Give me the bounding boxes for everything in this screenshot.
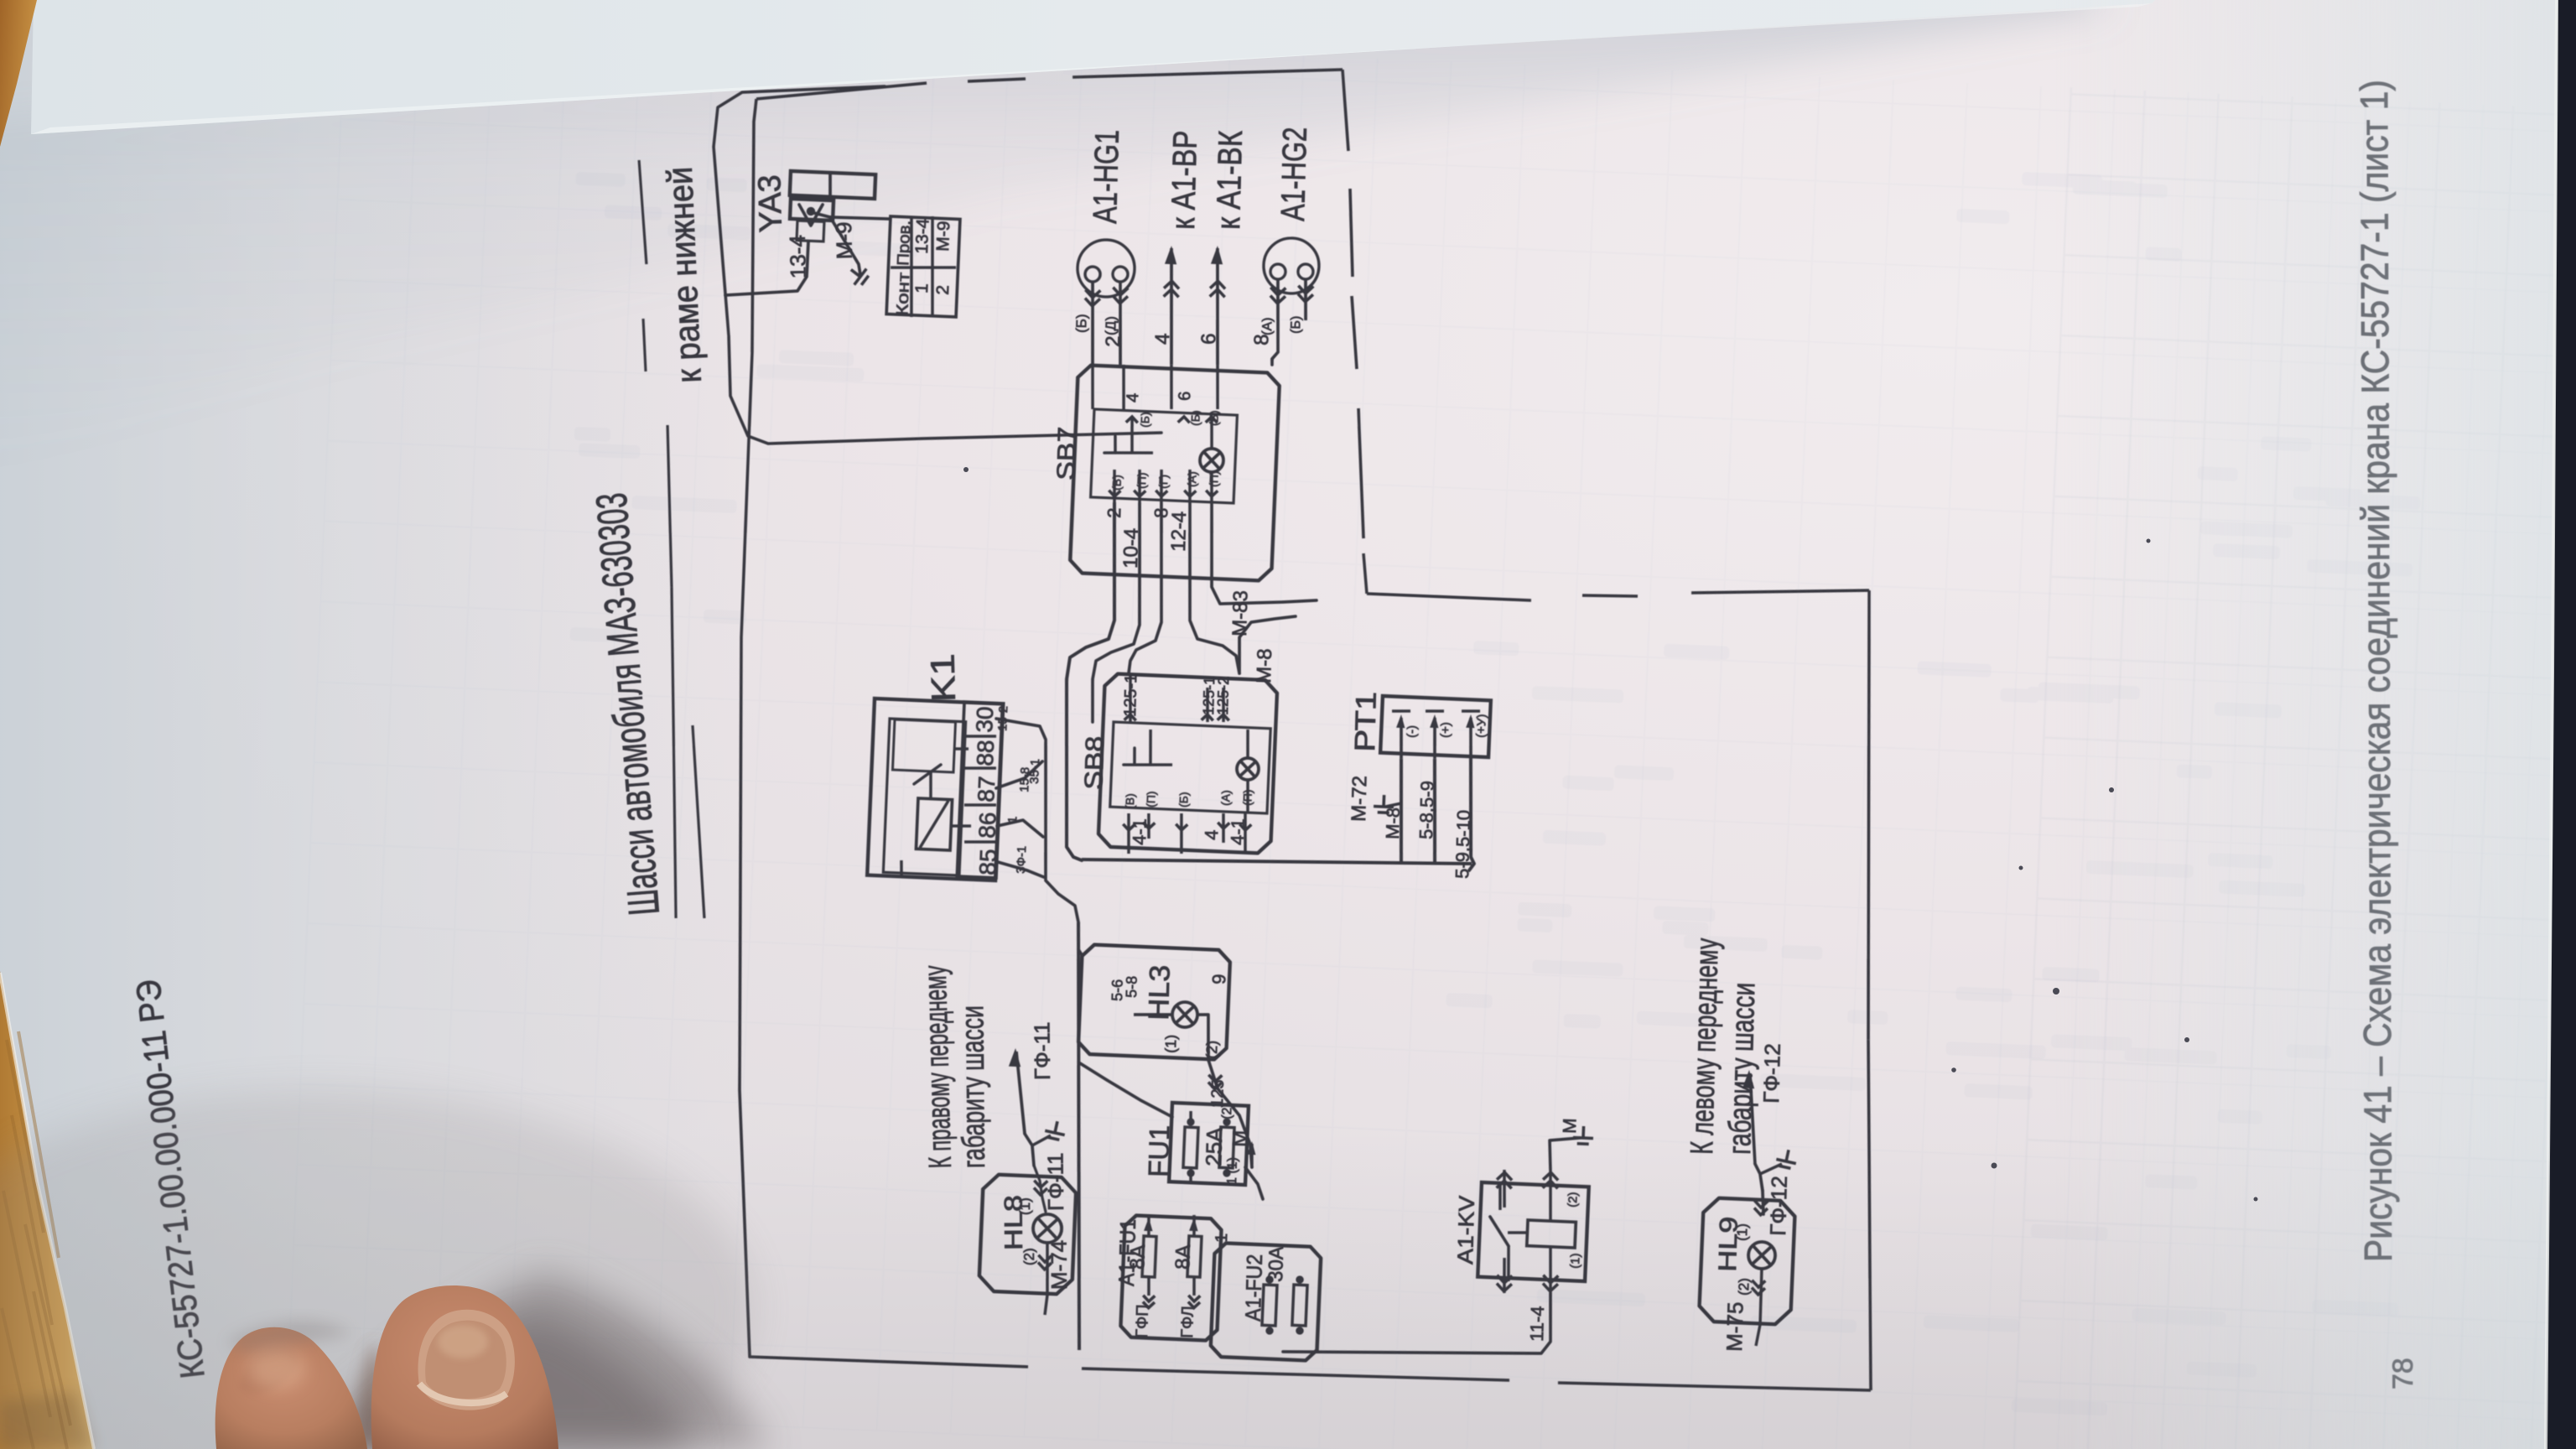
svg-text:A1-HG2: A1-HG2 [1275,127,1314,221]
svg-text:5-9,5-10: 5-9,5-10 [1452,810,1474,880]
svg-text:12-4: 12-4 [1167,511,1191,552]
svg-text:М-75: М-75 [1722,1301,1748,1352]
svg-text:Конт: Конт [894,272,913,316]
svg-text:(+): (+) [1438,722,1453,738]
svg-text:YA3: YA3 [752,174,789,233]
svg-text:4-1: 4-1 [1129,818,1150,845]
svg-text:РТ1: РТ1 [1349,691,1383,752]
svg-text:4: 4 [1201,829,1222,840]
svg-text:(Д): (Д) [1103,316,1119,335]
svg-text:1 (1): 1 (1) [1225,1157,1240,1185]
svg-text:8А: 8А [1171,1244,1195,1270]
svg-text:ГФЛ: ГФЛ [1178,1306,1197,1338]
svg-text:11-4: 11-4 [1526,1306,1548,1342]
svg-text:(1): (1) [1568,1253,1583,1269]
svg-text:(В): (В) [1109,475,1124,491]
svg-text:125-1: 125-1 [1121,673,1140,717]
svg-text:(А): (А) [1185,471,1199,487]
svg-text:13-4: 13-4 [912,218,933,254]
svg-text:М-8: М-8 [1382,808,1404,840]
svg-text:K1: K1 [924,653,963,703]
svg-text:35-1: 35-1 [1027,758,1042,784]
svg-text:(-): (-) [1405,725,1420,739]
svg-text:(Б): (Б) [1207,410,1221,426]
svg-text:125-2: 125-2 [1214,677,1232,716]
svg-text:2: 2 [1102,335,1124,347]
svg-text:М-9: М-9 [933,221,953,252]
svg-text:ГФ-11: ГФ-11 [1042,1152,1068,1211]
svg-text:(П): (П) [1207,470,1221,487]
svg-text:15-2: 15-2 [995,705,1010,731]
svg-text:6: 6 [1197,333,1220,345]
svg-text:(2): (2) [1220,1103,1235,1119]
svg-text:HL3: HL3 [1143,964,1176,1021]
svg-text:(1): (1) [1017,1197,1033,1215]
svg-text:1: 1 [1213,1233,1231,1243]
svg-text:2: 2 [1104,507,1124,518]
svg-text:SB7: SB7 [1052,426,1082,480]
svg-text:(1): (1) [1734,1223,1751,1241]
svg-text:A1-HG1: A1-HG1 [1087,129,1126,224]
svg-text:А1-KV: А1-KV [1452,1195,1479,1265]
svg-text:30: 30 [971,706,998,733]
svg-text:ГФ-11: ГФ-11 [1029,1021,1055,1080]
svg-text:габариту шасси: габариту шасси [1722,982,1762,1155]
svg-text:3Ф-1: 3Ф-1 [1014,845,1029,874]
svg-text:6: 6 [1176,391,1194,401]
svg-text:М-72: М-72 [1348,776,1371,822]
svg-text:5-8: 5-8 [1123,976,1140,999]
svg-text:габариту шасси: габариту шасси [955,1005,992,1168]
svg-text:(2): (2) [1021,1248,1037,1265]
svg-text:(1): (1) [1162,1035,1180,1054]
svg-text:(П): (П) [1240,789,1254,806]
svg-text:(А): (А) [1218,790,1233,806]
svg-text:2: 2 [933,285,953,296]
svg-text:М-83: М-83 [1228,590,1252,636]
svg-text:ГФ-12: ГФ-12 [1758,1043,1785,1104]
svg-text:(Б): (Б) [1188,410,1202,426]
svg-text:4: 4 [1151,333,1174,345]
svg-text:М-74: М-74 [1046,1240,1072,1291]
svg-text:(2): (2) [1736,1278,1753,1296]
svg-text:ГФ-12: ГФ-12 [1765,1176,1792,1236]
svg-text:1: 1 [1005,816,1020,823]
svg-text:88: 88 [972,740,999,766]
svg-text:SB8: SB8 [1080,735,1109,790]
svg-text:(2): (2) [1566,1192,1581,1207]
svg-text:(2): (2) [1203,1041,1221,1060]
svg-text:4: 4 [1124,392,1142,402]
svg-text:30А: 30А [1265,1246,1288,1282]
svg-text:к А1-ВР: к А1-ВР [1165,130,1204,230]
svg-text:(Б): (Б) [1289,316,1304,335]
svg-text:8А: 8А [1126,1244,1150,1270]
svg-text:4-1: 4-1 [1227,818,1249,845]
svg-text:(+У): (+У) [1474,714,1489,738]
svg-text:ГФП: ГФП [1133,1304,1152,1338]
svg-text:(Б): (Б) [1073,314,1090,333]
svg-text:(А): (А) [1260,317,1275,335]
svg-text:Пров.: Пров. [895,220,914,266]
svg-text:М-8: М-8 [1253,648,1276,683]
svg-text:A1-FU2: A1-FU2 [1240,1254,1267,1322]
svg-text:К левому переднему: К левому переднему [1685,937,1726,1155]
svg-text:М: М [1559,1118,1580,1134]
svg-text:(Б): (Б) [1176,792,1191,808]
svg-text:9: 9 [1208,974,1229,984]
svg-text:25А: 25А [1201,1126,1227,1166]
svg-text:М: М [1229,1130,1253,1147]
svg-text:5-8,5-9: 5-8,5-9 [1415,781,1438,839]
svg-text:к А1-ВК: к А1-ВК [1210,130,1249,231]
svg-text:FU1: FU1 [1143,1124,1176,1177]
svg-text:(Г): (Г) [1156,475,1171,490]
svg-text:(П): (П) [1135,472,1149,489]
svg-text:1: 1 [912,283,932,294]
svg-text:13-4: 13-4 [785,235,811,279]
svg-text:К правому переднему: К правому переднему [918,965,958,1169]
svg-text:(П): (П) [1144,791,1158,808]
svg-text:(В): (В) [1123,793,1137,809]
svg-text:10-4: 10-4 [1119,527,1143,569]
svg-text:(Б): (Б) [1138,412,1152,428]
svg-text:М-9: М-9 [831,221,857,260]
